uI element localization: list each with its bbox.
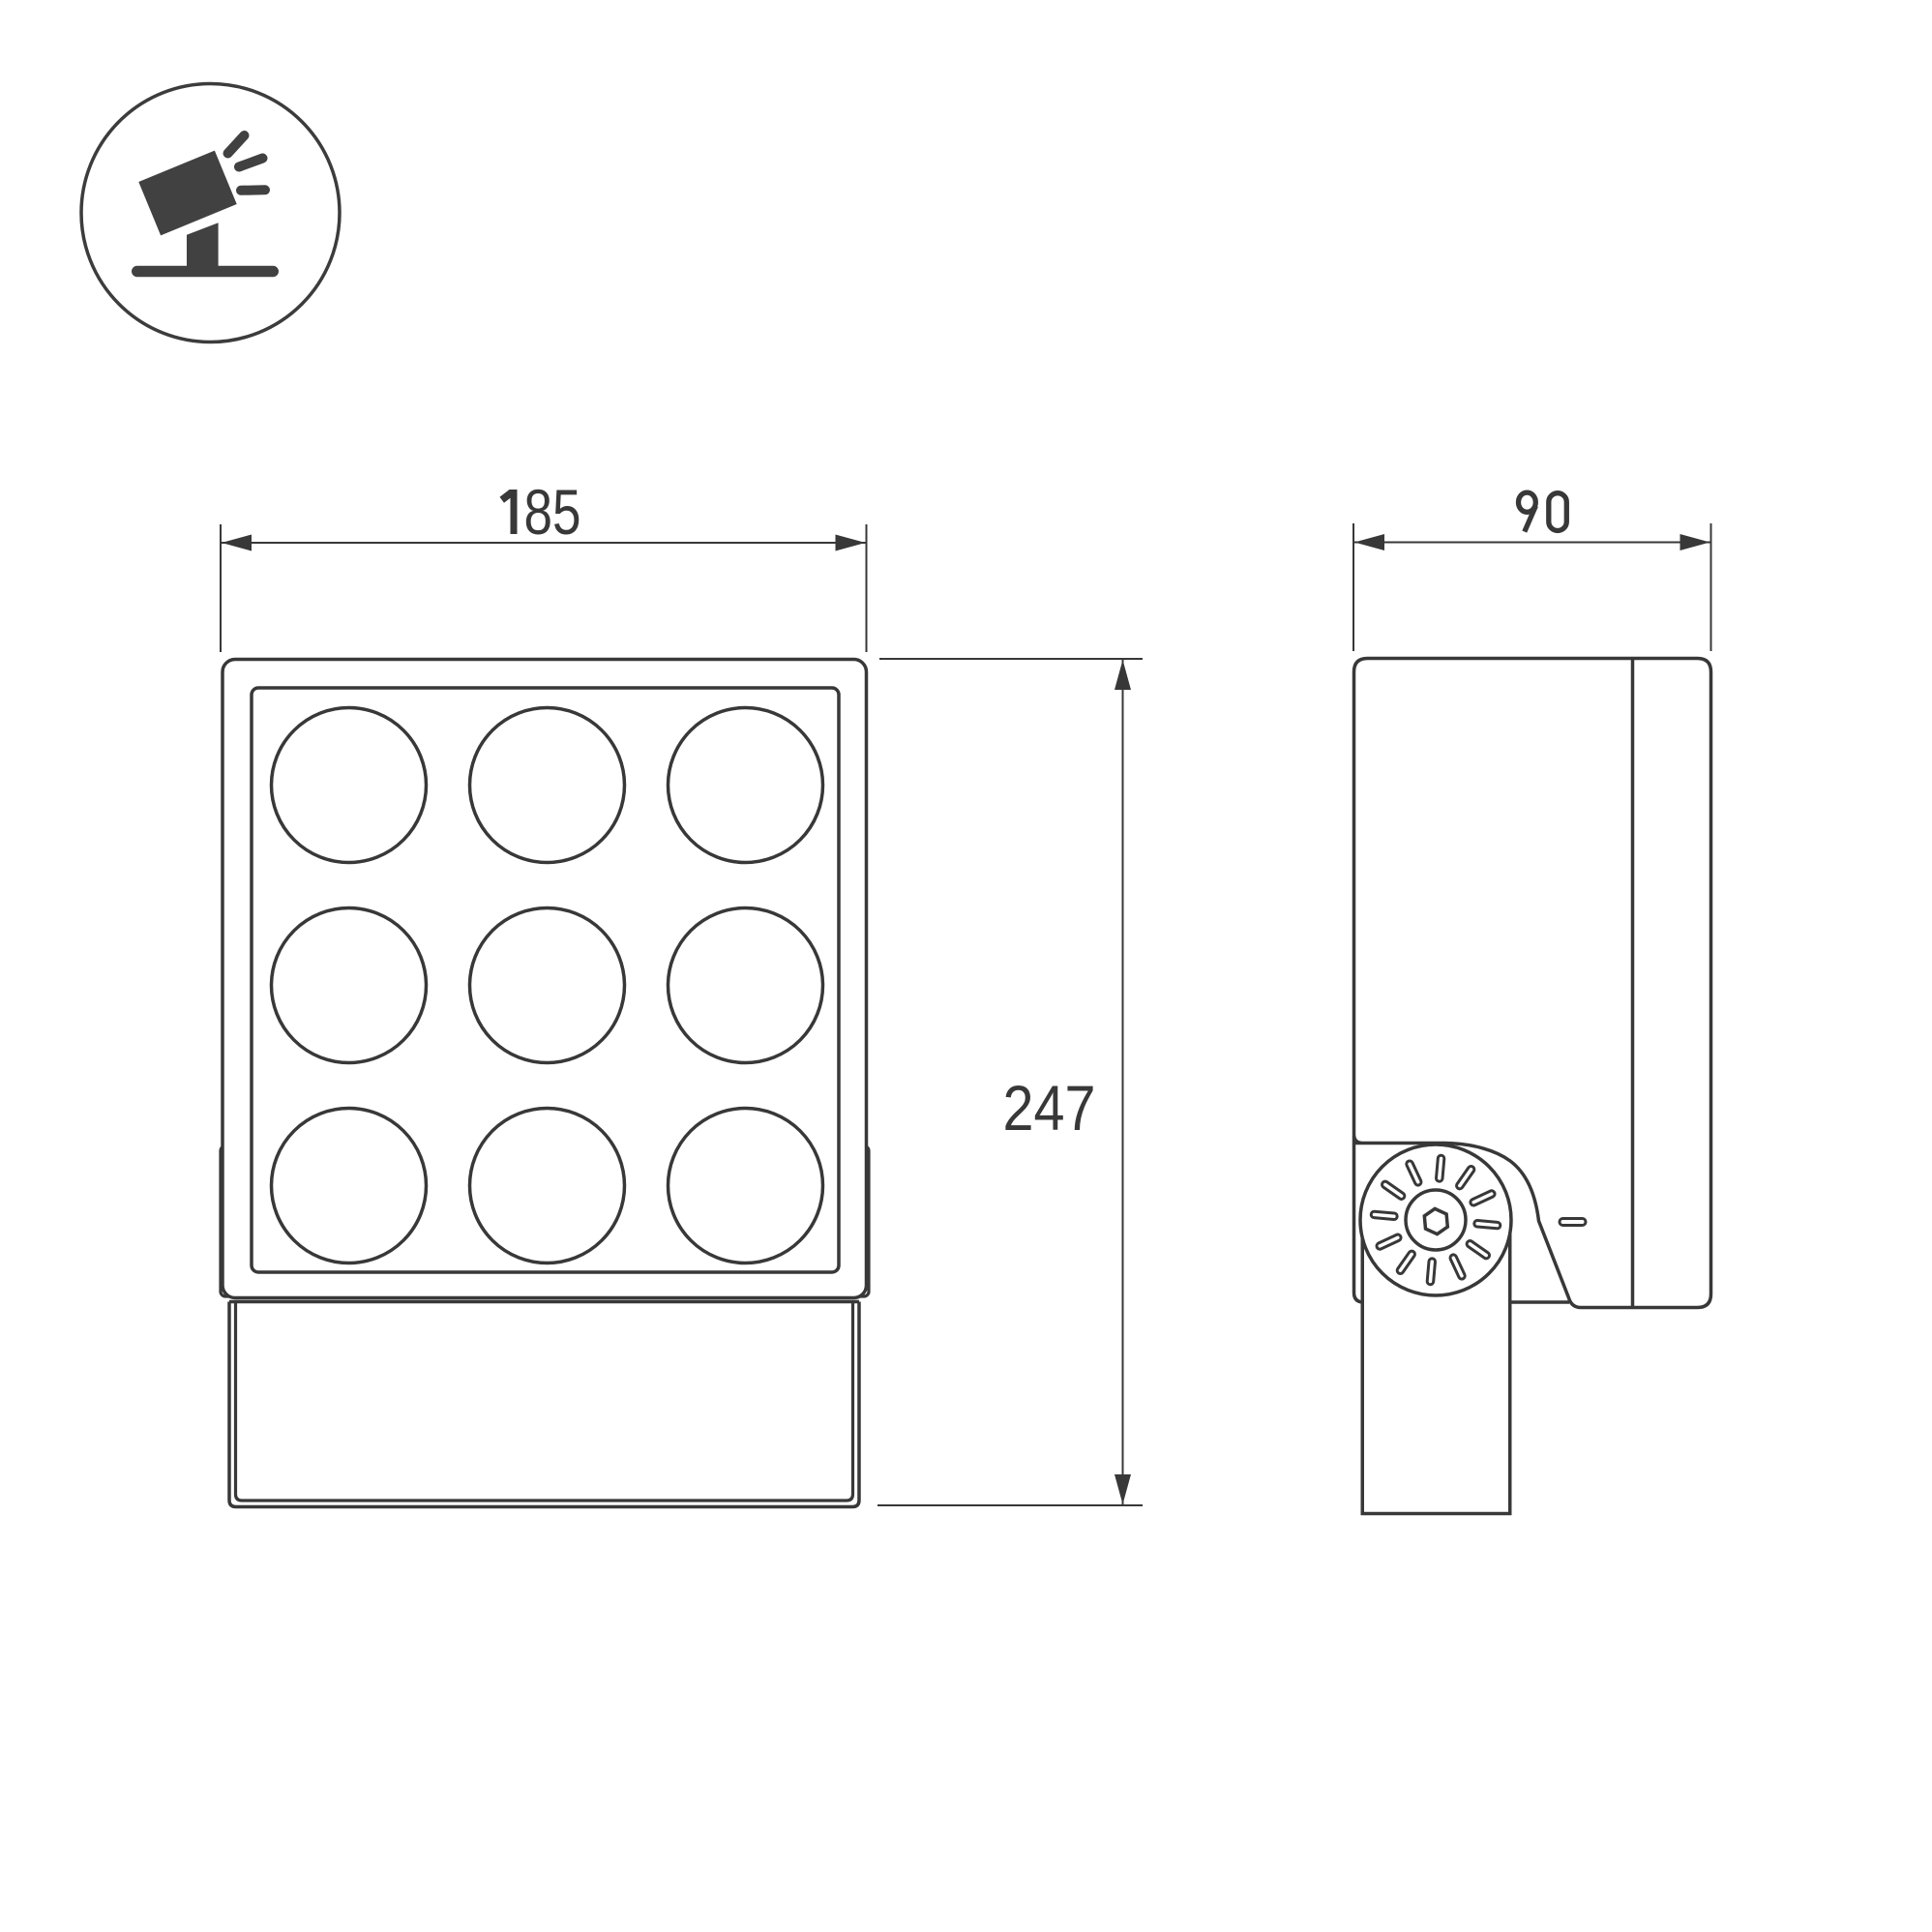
svg-text:247: 247 (1003, 1072, 1096, 1144)
svg-text:85: 85 (524, 476, 581, 548)
